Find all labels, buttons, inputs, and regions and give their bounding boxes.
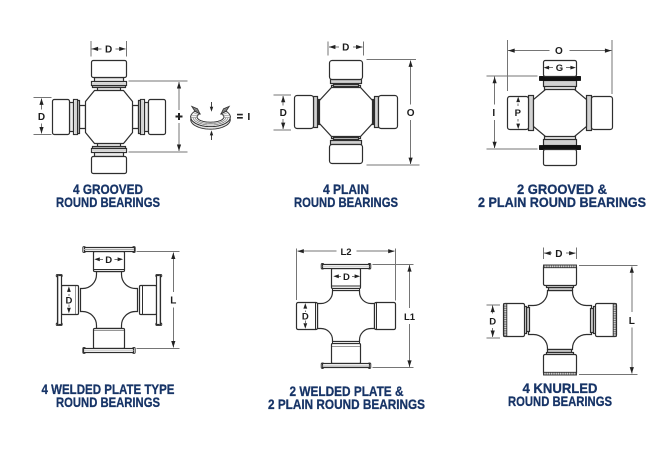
svg-text:D: D [38,112,45,123]
svg-text:L: L [629,316,635,327]
svg-text:G: G [556,63,563,74]
svg-text:ROUND BEARINGS: ROUND BEARINGS [56,194,160,210]
svg-text:D: D [343,272,350,283]
svg-text:2 PLAIN ROUND BEARINGS: 2 PLAIN ROUND BEARINGS [478,194,646,210]
svg-text:D: D [302,312,309,323]
svg-text:ROUND BEARINGS: ROUND BEARINGS [508,393,612,409]
svg-text:O: O [407,108,415,119]
svg-text:ROUND BEARINGS: ROUND BEARINGS [56,394,160,410]
svg-text:ROUND BEARINGS: ROUND BEARINGS [294,194,398,210]
svg-text:P: P [515,108,522,119]
svg-text:I: I [492,108,495,119]
svg-text:L: L [170,296,176,307]
svg-text:D: D [555,249,562,260]
svg-text:D: D [65,295,72,306]
svg-text:O: O [555,46,563,57]
svg-text:D: D [280,108,287,119]
svg-text:I: I [247,111,250,123]
svg-text:D: D [105,255,112,266]
svg-text:L1: L1 [404,312,416,323]
svg-text:L2: L2 [340,247,351,258]
svg-text:D: D [105,45,112,56]
svg-text:D: D [342,43,349,54]
svg-text:2 PLAIN ROUND BEARINGS: 2 PLAIN ROUND BEARINGS [268,396,425,412]
svg-text:D: D [489,317,496,328]
